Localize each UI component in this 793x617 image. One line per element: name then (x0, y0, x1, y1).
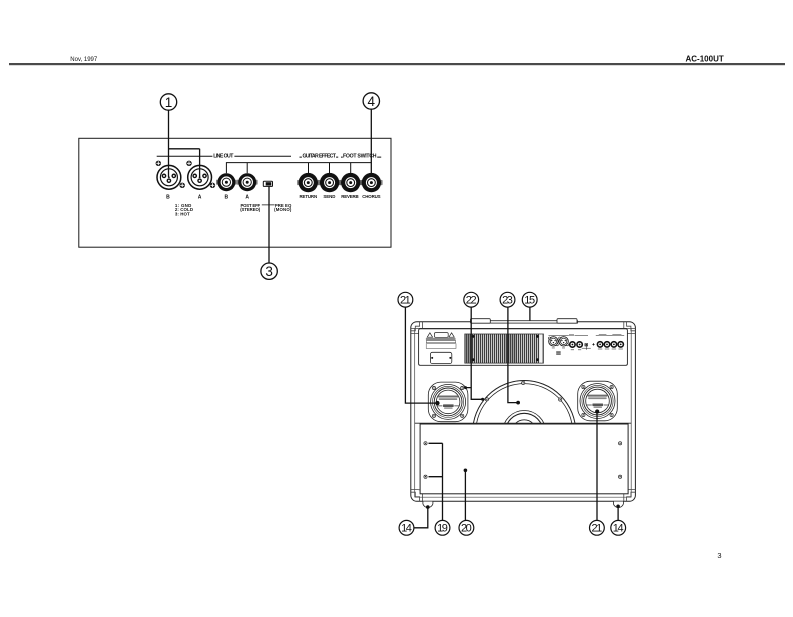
svg-text:(STEREO): (STEREO) (240, 207, 261, 212)
svg-text:1: 1 (165, 95, 173, 110)
svg-text:20: 20 (461, 523, 472, 535)
svg-text:B: B (224, 194, 228, 200)
svg-text:14: 14 (401, 523, 412, 535)
svg-text:21: 21 (400, 295, 411, 307)
svg-text:4: 4 (368, 94, 376, 109)
svg-text:22: 22 (466, 295, 477, 307)
svg-text:Nov, 1997: Nov, 1997 (70, 57, 98, 63)
svg-text:A: A (198, 194, 202, 200)
svg-text:REVERB: REVERB (341, 194, 358, 199)
svg-text:3: HOT: 3: HOT (175, 212, 190, 217)
svg-text:A: A (245, 194, 249, 200)
svg-text:SEND: SEND (323, 194, 335, 199)
svg-text:CHORUS: CHORUS (362, 194, 380, 199)
svg-text:3: 3 (717, 551, 721, 560)
svg-text:14: 14 (613, 523, 624, 535)
svg-text:3: 3 (265, 264, 273, 279)
svg-text:RETURN: RETURN (299, 194, 317, 199)
svg-text:15: 15 (524, 295, 535, 307)
svg-text:LINE OUT: LINE OUT (213, 153, 234, 159)
svg-text:AC-100UT: AC-100UT (686, 55, 724, 64)
svg-text:21: 21 (592, 523, 603, 535)
svg-text:(MONO): (MONO) (274, 207, 292, 212)
svg-text:FOOT SWITCH: FOOT SWITCH (343, 153, 377, 159)
svg-text:23: 23 (502, 295, 513, 307)
svg-text:GUITAR EFFECT: GUITAR EFFECT (302, 153, 336, 159)
svg-text:B: B (166, 194, 170, 200)
svg-text:19: 19 (437, 523, 448, 535)
